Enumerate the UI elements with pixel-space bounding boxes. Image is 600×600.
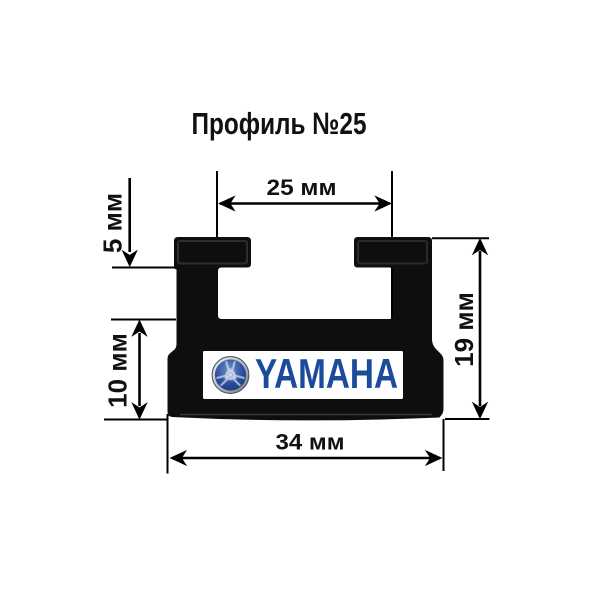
svg-text:Профиль №25: Профиль №25 [192,106,367,141]
svg-text:10 мм: 10 мм [103,333,133,408]
svg-text:34 мм: 34 мм [276,429,345,454]
svg-text:25 мм: 25 мм [267,175,337,200]
svg-text:YAMAHA: YAMAHA [255,350,398,397]
svg-text:19 мм: 19 мм [449,292,479,367]
svg-text:5 мм: 5 мм [98,193,128,253]
